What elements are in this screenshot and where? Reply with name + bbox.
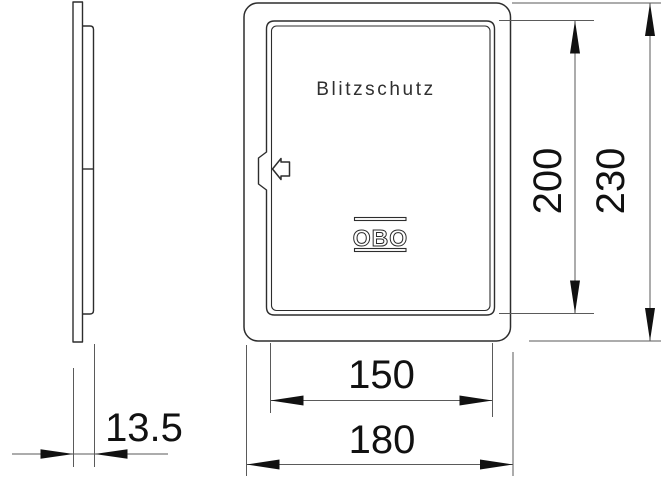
latch-arrow-icon <box>273 159 290 180</box>
arrow-150-left-icon <box>271 396 304 406</box>
arrow-200-up-icon <box>570 21 580 54</box>
dim-label-door-height: 200 <box>526 148 570 215</box>
dim-label-door-width: 150 <box>348 353 415 397</box>
arrow-230-up-icon <box>645 3 655 36</box>
dimension-labels: 200 230 150 180 13.5 <box>105 148 633 462</box>
door-engraving-label: Blitzschutz <box>316 79 435 100</box>
dim-label-overall-width: 180 <box>349 418 416 462</box>
technical-drawing-page: Blitzschutz OBO <box>0 0 665 479</box>
arrow-180-left-icon <box>247 460 280 470</box>
arrow-180-right-icon <box>480 460 513 470</box>
dimension-arrowheads <box>41 3 656 470</box>
drawing-canvas: Blitzschutz OBO <box>0 0 665 479</box>
arrow-depth-right-icon <box>95 449 128 459</box>
arrow-depth-left-icon <box>41 449 74 459</box>
arrow-200-down-icon <box>570 281 580 314</box>
front-view <box>244 3 511 341</box>
dim-label-overall-height: 230 <box>589 148 633 215</box>
side-view <box>73 2 94 342</box>
side-view-cover-profile <box>83 26 94 314</box>
obo-logo: OBO <box>353 218 408 252</box>
arrow-150-right-icon <box>460 396 493 406</box>
door-inner-line <box>272 26 491 311</box>
dim-label-depth: 13.5 <box>105 406 183 450</box>
arrow-230-down-icon <box>645 308 655 341</box>
door-outline <box>259 21 495 315</box>
obo-logo-text: OBO <box>353 225 408 251</box>
obo-logo-bar-top <box>355 218 407 221</box>
side-view-back-plate <box>73 2 83 342</box>
